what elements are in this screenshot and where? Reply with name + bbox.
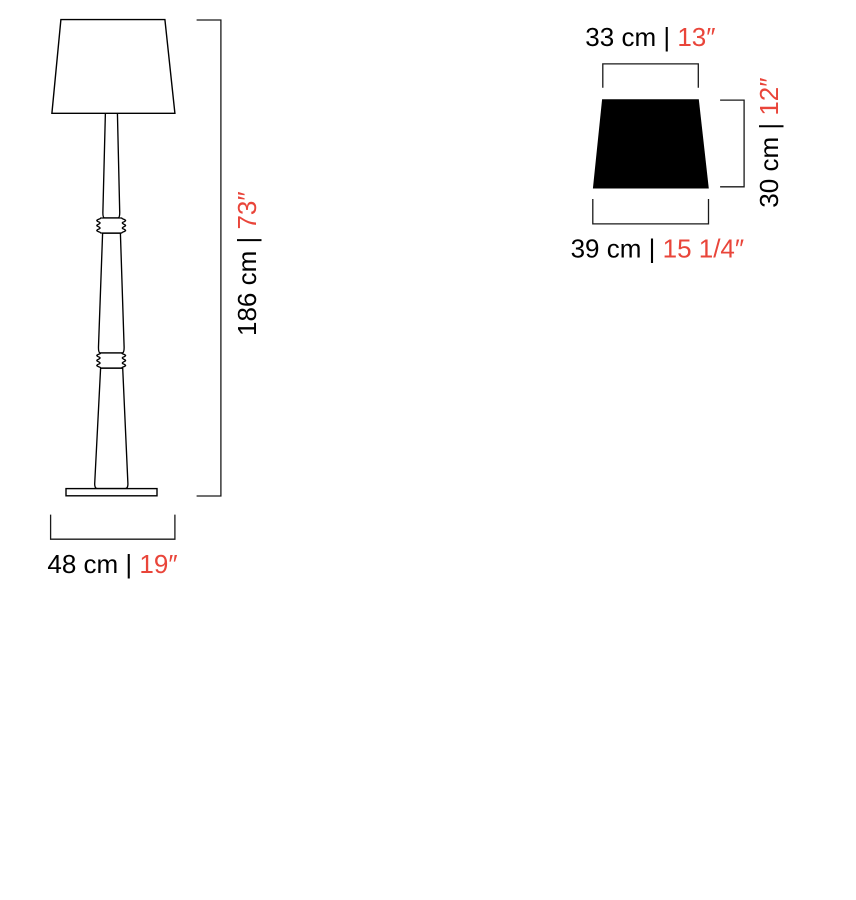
svg-text:30 cm | 12″: 30 cm | 12″ <box>754 78 784 208</box>
svg-text:186 cm | 73″: 186 cm | 73″ <box>232 191 262 336</box>
svg-text:48 cm | 19″: 48 cm | 19″ <box>47 549 177 579</box>
svg-text:33 cm | 13″: 33 cm | 13″ <box>585 22 715 52</box>
svg-text:39 cm | 15 1/4″: 39 cm | 15 1/4″ <box>571 234 745 264</box>
